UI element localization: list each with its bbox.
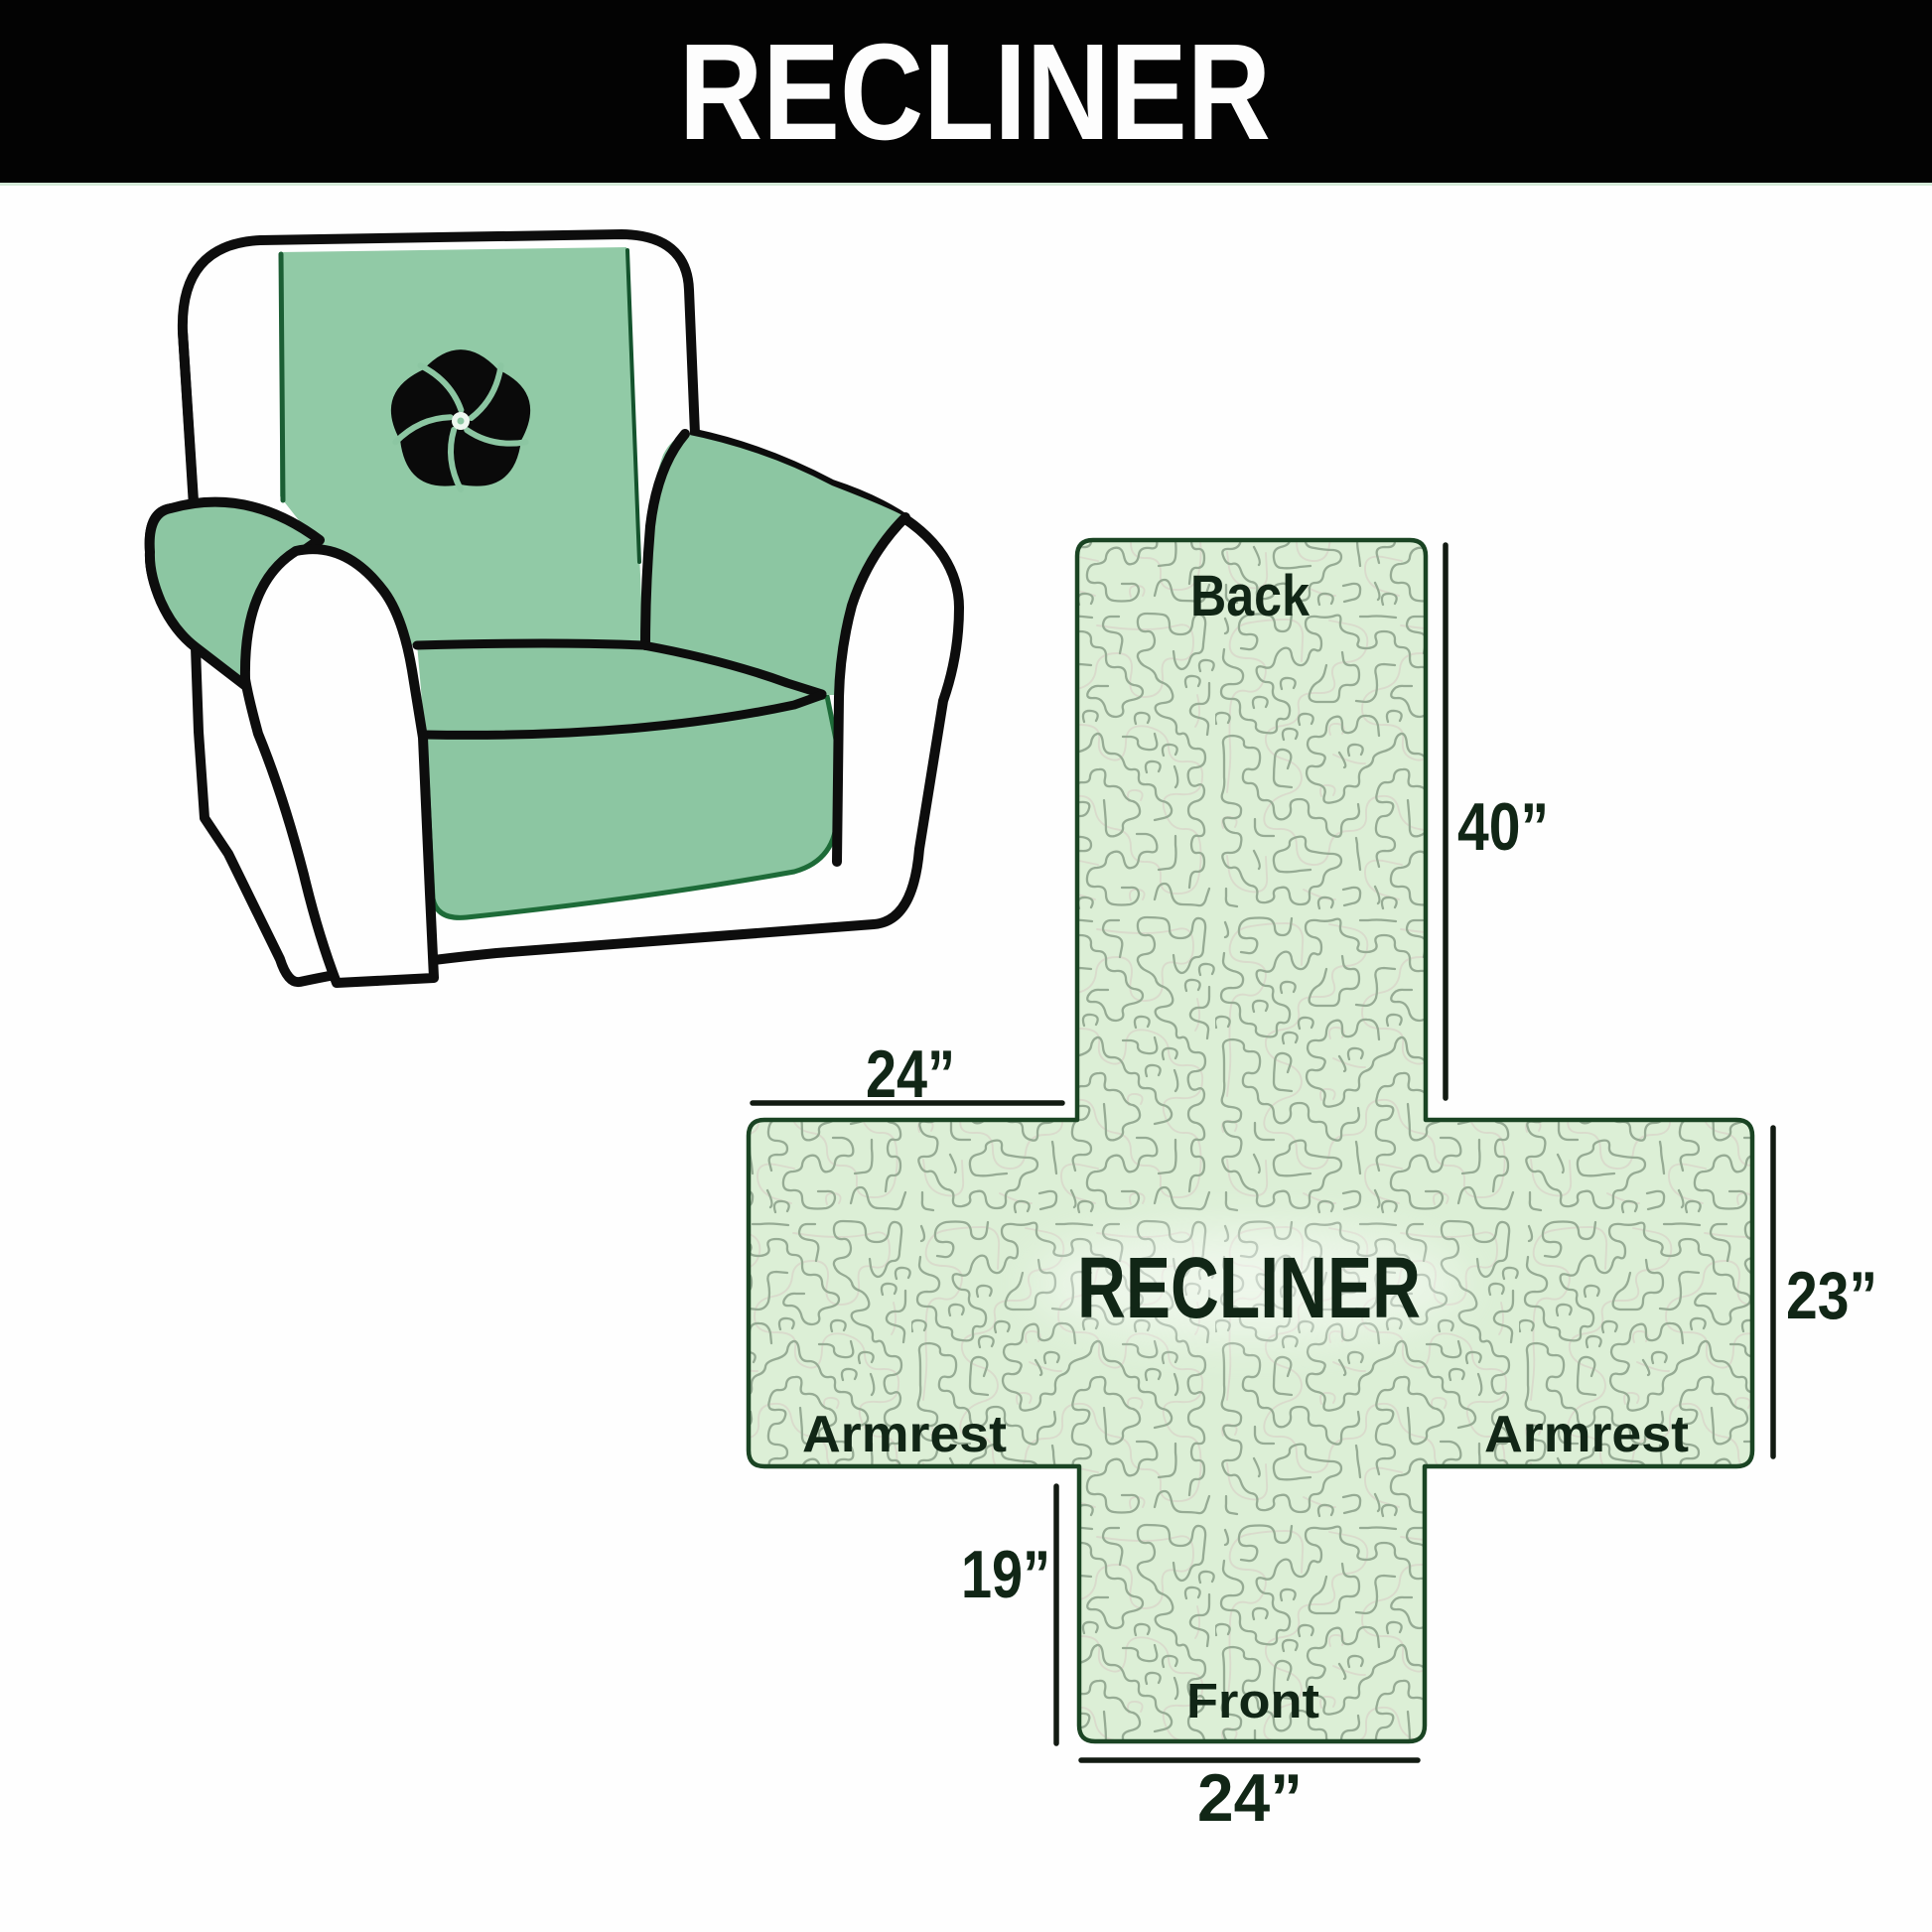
svg-text:40”: 40” <box>1457 789 1549 865</box>
svg-text:Armrest: Armrest <box>802 1406 1007 1463</box>
svg-text:Front: Front <box>1186 1675 1319 1728</box>
svg-text:RECLINER: RECLINER <box>1077 1240 1421 1336</box>
svg-text:RECLINER: RECLINER <box>679 16 1271 169</box>
svg-text:24”: 24” <box>1197 1760 1303 1836</box>
svg-text:23”: 23” <box>1786 1258 1877 1333</box>
svg-text:Armrest: Armrest <box>1484 1406 1689 1463</box>
svg-text:Back: Back <box>1190 564 1311 628</box>
svg-text:19”: 19” <box>961 1537 1050 1612</box>
